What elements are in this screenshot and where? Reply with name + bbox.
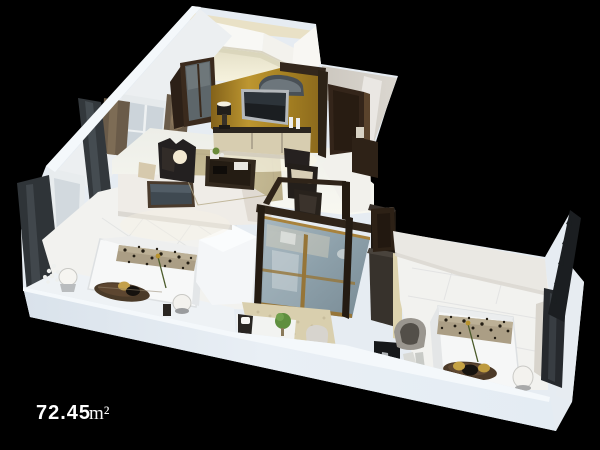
svg-text:m²: m²: [89, 403, 110, 424]
svg-text:72.45: 72.45: [36, 402, 91, 424]
